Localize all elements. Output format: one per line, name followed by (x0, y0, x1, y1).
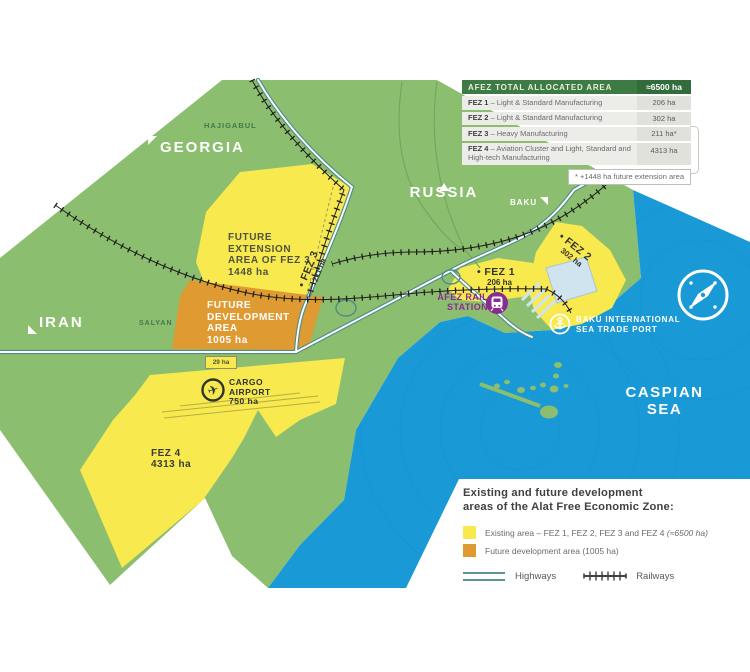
legend-item-text: Future development area (1005 ha) (485, 546, 619, 556)
afez-map-infographic: ✈ GEORGIA H (0, 0, 750, 672)
railways-label: Railways (636, 571, 674, 582)
country-name: GEORGIA (160, 139, 245, 156)
city-name: BAKU (510, 198, 537, 207)
zone-line: DEVELOPMENT (207, 312, 290, 324)
sea-name-line2: SEA (617, 401, 712, 418)
table-header-value: ≈6500 ha (637, 80, 691, 94)
allocation-table: AFEZ TOTAL ALLOCATED AREA ≈6500 ha FEZ 1… (462, 80, 691, 185)
row-value: 211 ha* (637, 127, 691, 141)
zone-code: FEZ 3 (468, 129, 488, 138)
label-hajigabul: HAJIGABUL (204, 121, 257, 130)
table-row: FEZ 3 – Heavy Manufacturing 211 ha* (462, 127, 691, 141)
zone-area: 1005 ha (207, 335, 290, 347)
legend-title-line2: areas of the Alat Free Economic Zone: (463, 501, 748, 515)
row-value: 4313 ha (637, 143, 691, 165)
zone-desc: – Light & Standard Manufacturing (491, 113, 603, 122)
railway-symbol (582, 570, 628, 582)
zone-code: FEZ 1 (468, 98, 488, 107)
zone-desc: – Aviation Cluster and Light, Standard a… (468, 144, 631, 162)
legend-line-symbols: Highways Railways (463, 570, 748, 582)
zone-line: AREA (207, 323, 290, 335)
table-header-row: AFEZ TOTAL ALLOCATED AREA ≈6500 ha (462, 80, 691, 94)
poi-line: AFEZ RAIL (426, 292, 488, 302)
arrow-ne-icon (540, 197, 548, 205)
footnote-bracket (690, 126, 699, 174)
label-afez-rail-station: AFEZ RAIL STATION (426, 292, 488, 312)
arrow-nw-icon (148, 136, 157, 145)
table-row: FEZ 1 – Light & Standard Manufacturing 2… (462, 96, 691, 110)
legend-item-label: Existing area – FEZ 1, FEZ 2, FEZ 3 and … (485, 528, 708, 538)
zone-line: AREA OF FEZ 3 (228, 255, 310, 267)
existing-area-swatch (463, 526, 476, 539)
country-name: IRAN (39, 314, 84, 331)
label-fez4: FEZ 4 4313 ha (151, 448, 191, 470)
train-station-icon (486, 292, 508, 314)
poi-line: STATION (426, 302, 488, 312)
zone-area: 4313 ha (151, 459, 191, 470)
row-value: 206 ha (637, 96, 691, 110)
legend-item-note: (≈6500 ha) (667, 528, 708, 538)
label-small-parcel: 29 ha (205, 356, 237, 369)
zone-line: FUTURE (228, 232, 310, 244)
legend-item-future: Future development area (1005 ha) (463, 544, 748, 557)
row-label: FEZ 1 – Light & Standard Manufacturing (462, 96, 637, 110)
label-baku-sea-trade-port: BAKU INTERNATIONAL SEA TRADE PORT (576, 315, 680, 334)
zone-desc: – Light & Standard Manufacturing (491, 98, 603, 107)
country-name: RUSSIA (408, 184, 480, 201)
legend-title-line1: Existing and future development (463, 487, 748, 501)
table-row: FEZ 4 – Aviation Cluster and Light, Stan… (462, 143, 691, 165)
label-caspian-sea: CASPIAN SEA (617, 384, 712, 418)
zone-desc: – Heavy Manufacturing (491, 129, 568, 138)
table-row: FEZ 2 – Light & Standard Manufacturing 3… (462, 112, 691, 126)
label-georgia: GEORGIA (148, 136, 245, 156)
sea-name-line1: CASPIAN (617, 384, 712, 401)
future-area-swatch (463, 544, 476, 557)
arrow-sw-icon (28, 325, 37, 334)
zone-code: FEZ 2 (468, 113, 488, 122)
highways-label: Highways (515, 571, 556, 582)
legend-item-text: Existing area – FEZ 1, FEZ 2, FEZ 3 and … (485, 528, 667, 538)
poi-line: SEA TRADE PORT (576, 325, 680, 335)
zone-area: 206 ha (487, 278, 515, 287)
zone-area: 750 ha (229, 397, 271, 407)
zone-line: EXTENSION (228, 244, 310, 256)
zone-name: • FEZ 1 (477, 267, 515, 278)
row-value: 302 ha (637, 112, 691, 126)
label-salyan: SALYAN (139, 320, 173, 327)
label-baku: BAKU (510, 198, 548, 207)
label-fez1: • FEZ 1 206 ha (477, 267, 515, 287)
railway-symbol-svg (582, 570, 628, 582)
row-label: FEZ 2 – Light & Standard Manufacturing (462, 112, 637, 126)
label-cargo-airport: CARGO AIRPORT 750 ha (229, 378, 271, 407)
table-header-label: AFEZ TOTAL ALLOCATED AREA (462, 80, 637, 94)
table-footnote: * +1448 ha future extension area (568, 169, 691, 185)
poi-line: BAKU INTERNATIONAL (576, 315, 680, 325)
legend-item-existing: Existing area – FEZ 1, FEZ 2, FEZ 3 and … (463, 526, 748, 539)
zone-line: FUTURE (207, 300, 290, 312)
label-future-development-area: FUTURE DEVELOPMENT AREA 1005 ha (207, 300, 290, 346)
zone-name: FEZ 4 (151, 448, 191, 459)
highway-symbol (463, 572, 505, 581)
label-iran: IRAN (28, 314, 84, 331)
footnote-row: * +1448 ha future extension area (462, 169, 691, 185)
label-future-extension-area: FUTURE EXTENSION AREA OF FEZ 3 1448 ha (228, 232, 310, 278)
row-label: FEZ 4 – Aviation Cluster and Light, Stan… (462, 143, 637, 165)
row-label: FEZ 3 – Heavy Manufacturing (462, 127, 637, 141)
legend: Existing and future development areas of… (463, 487, 748, 582)
